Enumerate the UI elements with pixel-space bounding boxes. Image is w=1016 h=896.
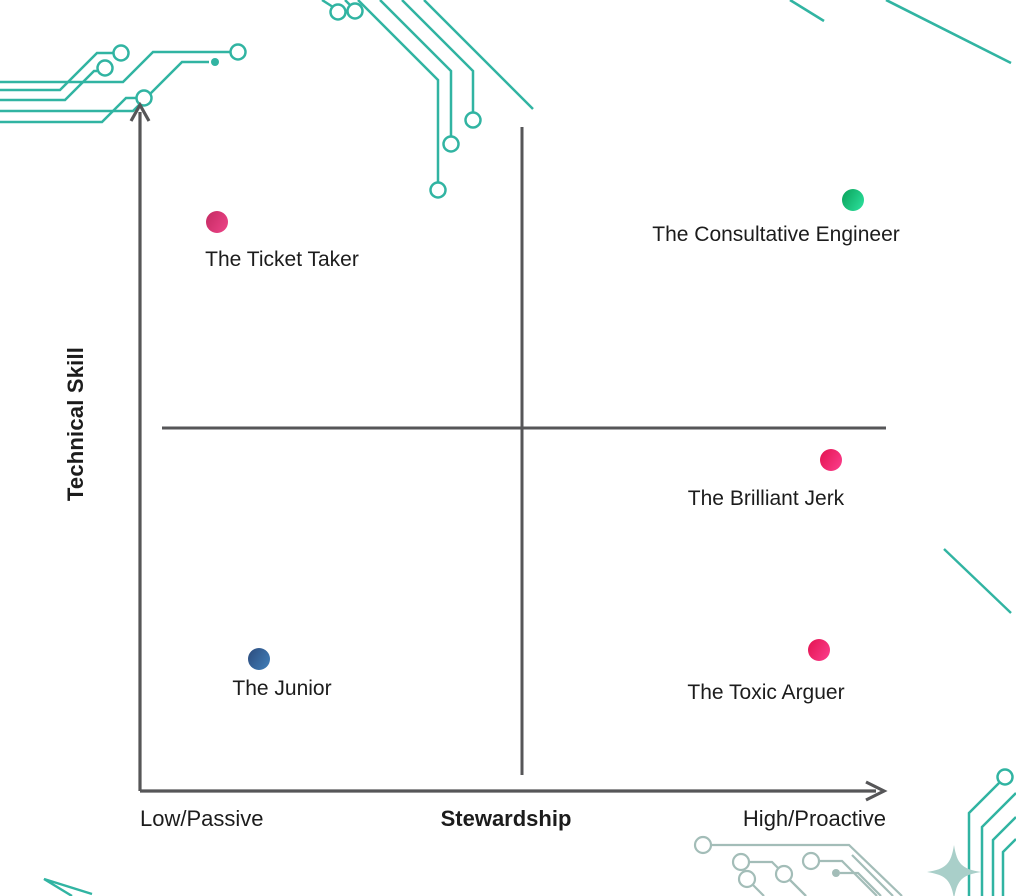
data-points-layer: The Ticket TakerThe Consultative Enginee… xyxy=(0,0,1016,896)
data-point-dot xyxy=(842,189,864,211)
data-point-label: The Brilliant Jerk xyxy=(688,487,844,511)
data-point-dot xyxy=(206,211,228,233)
data-point-label: The Consultative Engineer xyxy=(652,223,899,247)
data-point-dot xyxy=(808,639,830,661)
data-point-label: The Toxic Arguer xyxy=(687,681,844,705)
data-point-label: The Junior xyxy=(232,677,331,701)
data-point-dot xyxy=(248,648,270,670)
data-point-label: The Ticket Taker xyxy=(205,248,359,272)
quadrant-chart: Technical Skill Low/Passive Stewardship … xyxy=(0,0,1016,896)
data-point-dot xyxy=(820,449,842,471)
